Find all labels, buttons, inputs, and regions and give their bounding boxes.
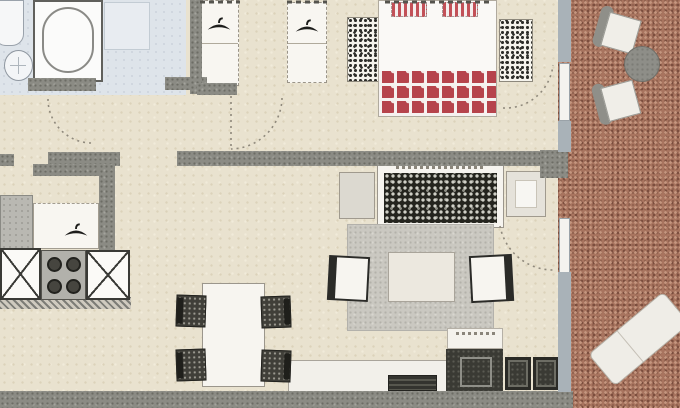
media-cabinet-door: [460, 357, 492, 387]
armchair-right: [469, 254, 514, 303]
balcony-wall-mid: [558, 121, 571, 152]
dining-chair-bl: [175, 348, 206, 381]
wall-shelf: [447, 328, 503, 349]
burner-icon: [66, 257, 81, 272]
burner-icon: [47, 279, 62, 294]
balcony-door-living: [559, 218, 570, 274]
armchair-left: [327, 255, 370, 302]
wall-left-stub: [0, 154, 14, 166]
dresser-right: [499, 19, 533, 82]
kitchen-tall-cabinet: [0, 195, 33, 249]
burner-icon: [66, 279, 81, 294]
wall-bedroom1-left: [190, 0, 202, 94]
stool-1: [505, 357, 531, 390]
floor-plan: [0, 0, 680, 408]
hanger-icon: [291, 16, 323, 36]
tv: [388, 375, 437, 391]
bathtub: [33, 0, 103, 82]
shower-tray: [104, 2, 150, 50]
wall-bath-bottom-left: [28, 78, 96, 91]
wall-below-wardrobe1: [197, 83, 237, 95]
sofa: [377, 162, 504, 228]
media-cabinet: [446, 349, 503, 392]
red-checkered-duvet: [379, 71, 496, 116]
wardrobe-2: [287, 2, 327, 83]
cooktop: [41, 250, 86, 300]
dining-table: [202, 283, 265, 387]
bathtub-basin: [42, 7, 94, 73]
balcony-door-bedroom: [559, 63, 570, 121]
wardrobe-1: [200, 0, 239, 86]
burner-icon: [47, 257, 62, 272]
dresser-left: [347, 17, 379, 82]
dining-chair-tl: [175, 294, 206, 327]
pillow-right: [442, 2, 478, 17]
dining-chair-tr: [260, 295, 291, 328]
sofa-scan-marks: [396, 166, 484, 169]
counter-unit: [86, 250, 130, 300]
dining-chair-br: [260, 349, 291, 382]
toilet: [0, 0, 24, 46]
wall-closet-right: [99, 164, 115, 250]
sofa-cushions: [384, 173, 497, 223]
hanger-icon: [60, 220, 92, 240]
double-bed: [378, 0, 497, 117]
sink-base-unit: [0, 248, 41, 300]
stool-2: [533, 357, 559, 390]
balcony-wall-bottom: [558, 272, 571, 392]
balcony-wall-top: [558, 0, 571, 62]
washbasin: [4, 50, 33, 81]
coffee-table: [388, 252, 455, 302]
side-table-plant: [515, 180, 537, 208]
wall-balcony-junction: [540, 150, 568, 178]
hanger-icon: [203, 14, 235, 34]
wall-main-right: [177, 151, 568, 166]
shelf-scan-marks: [456, 332, 496, 335]
pillow-left: [391, 2, 427, 17]
wall-bottom: [0, 391, 573, 408]
side-table-left: [339, 172, 375, 219]
